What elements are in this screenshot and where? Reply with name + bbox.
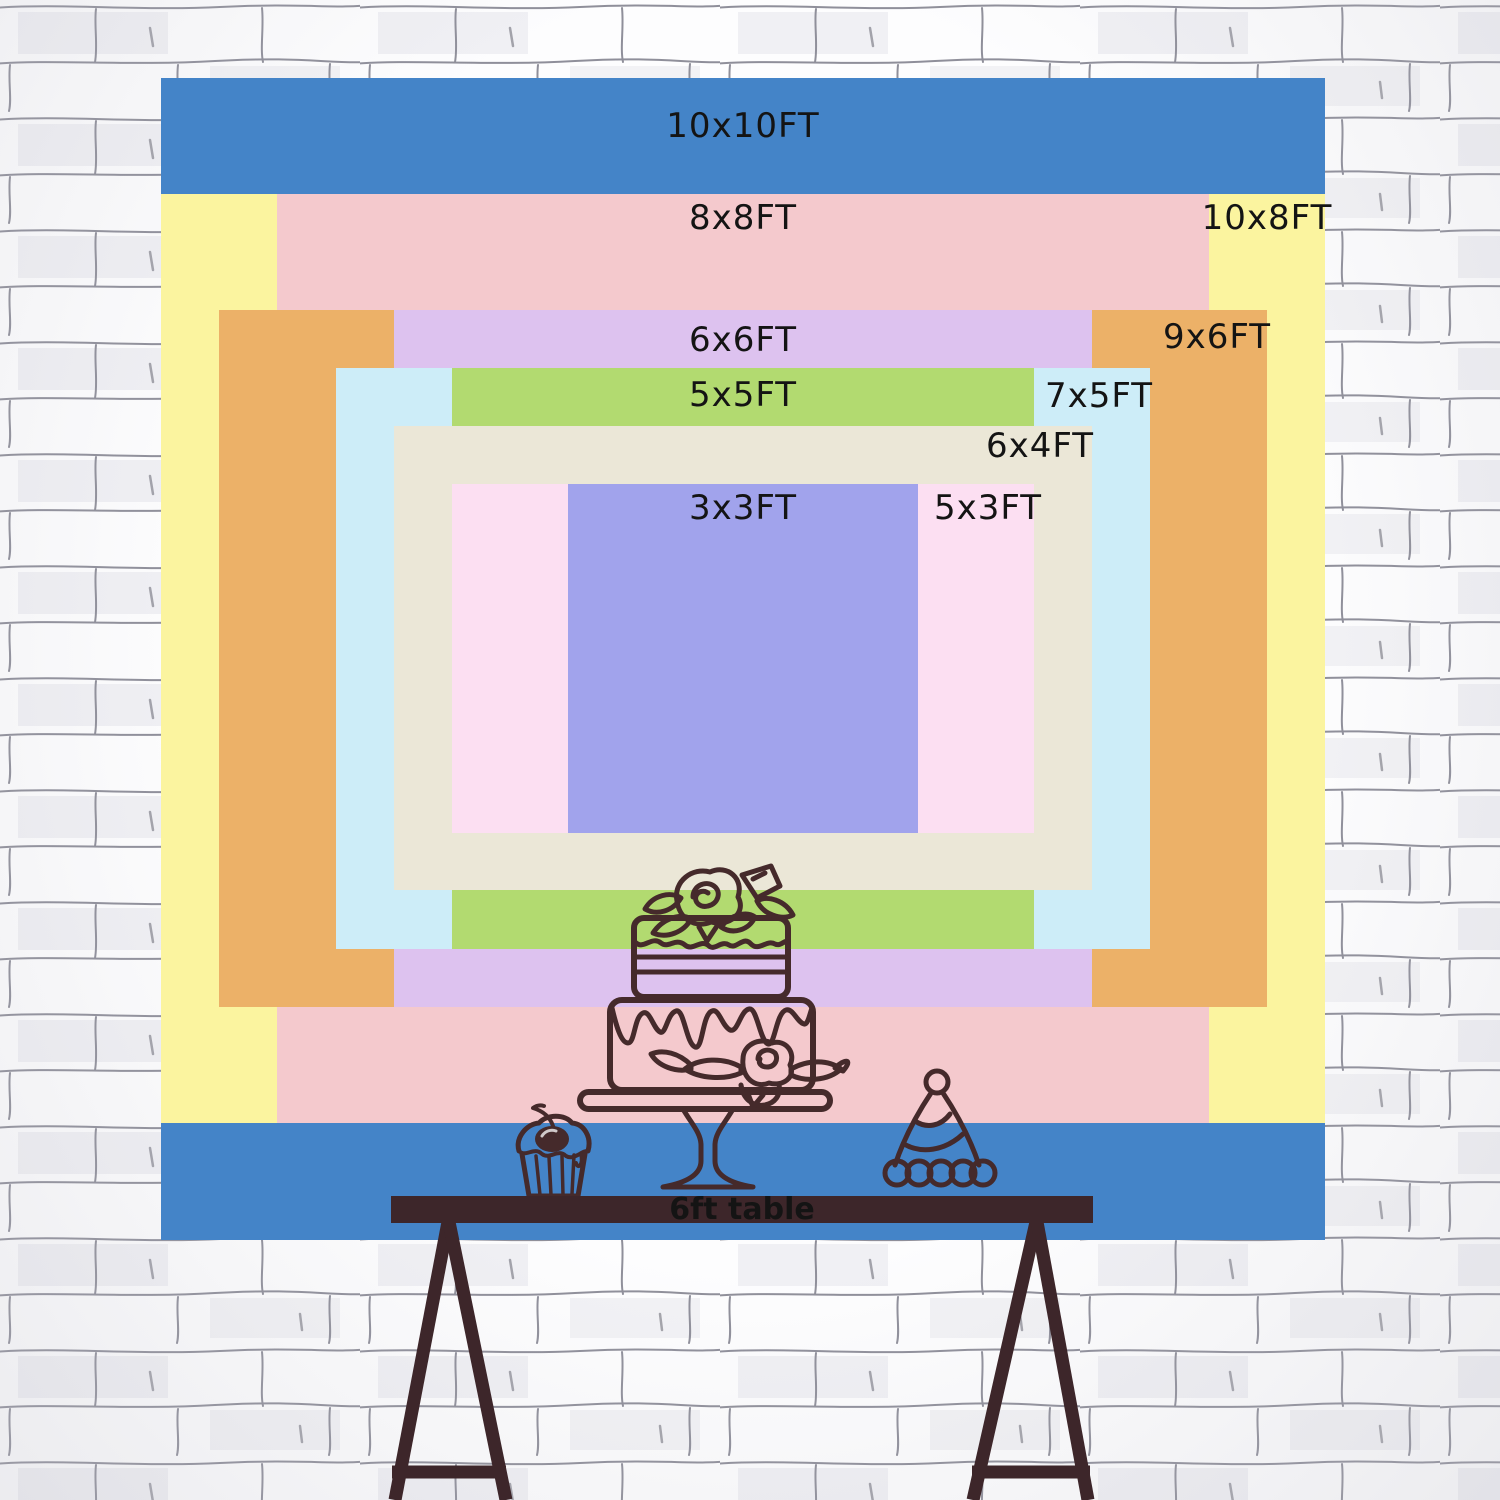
- cake-table-illustration: [495, 855, 1015, 1200]
- size-label-10x10ft: 10x10FT: [666, 109, 819, 143]
- right-trestle-leg: [972, 1222, 1090, 1500]
- size-label-7x5ft: 7x5FT: [1045, 379, 1153, 413]
- size-label-6x4ft: 6x4FT: [986, 429, 1094, 463]
- left-trestle-leg: [392, 1222, 506, 1500]
- size-label-8x8ft: 8x8FT: [689, 201, 797, 235]
- size-label-9x6ft: 9x6FT: [1163, 320, 1271, 354]
- backdrop-size-chart: 10x10FT 10x8FT 8x8FT 9x6FT 6x6FT 7x5FT 5…: [0, 0, 1500, 1500]
- party-hat-icon: [885, 1071, 995, 1185]
- table-legs-illustration: [0, 1222, 1500, 1500]
- size-label-6x6ft: 6x6FT: [689, 323, 797, 357]
- rose-topper: [645, 866, 793, 941]
- size-label-3x3ft: 3x3FT: [689, 491, 797, 525]
- size-label-10x8ft: 10x8FT: [1202, 201, 1333, 235]
- cupcake-icon: [518, 1105, 589, 1196]
- lotus-flower: [651, 1041, 848, 1107]
- tiered-cake-icon: [610, 866, 848, 1107]
- layer-3x3ft: [568, 484, 918, 833]
- table-label: 6ft table: [669, 1195, 814, 1225]
- table-bar: 6ft table: [391, 1196, 1093, 1223]
- size-label-5x5ft: 5x5FT: [689, 378, 797, 412]
- size-label-5x3ft: 5x3FT: [934, 491, 1042, 525]
- cake-stand-icon: [580, 1092, 830, 1187]
